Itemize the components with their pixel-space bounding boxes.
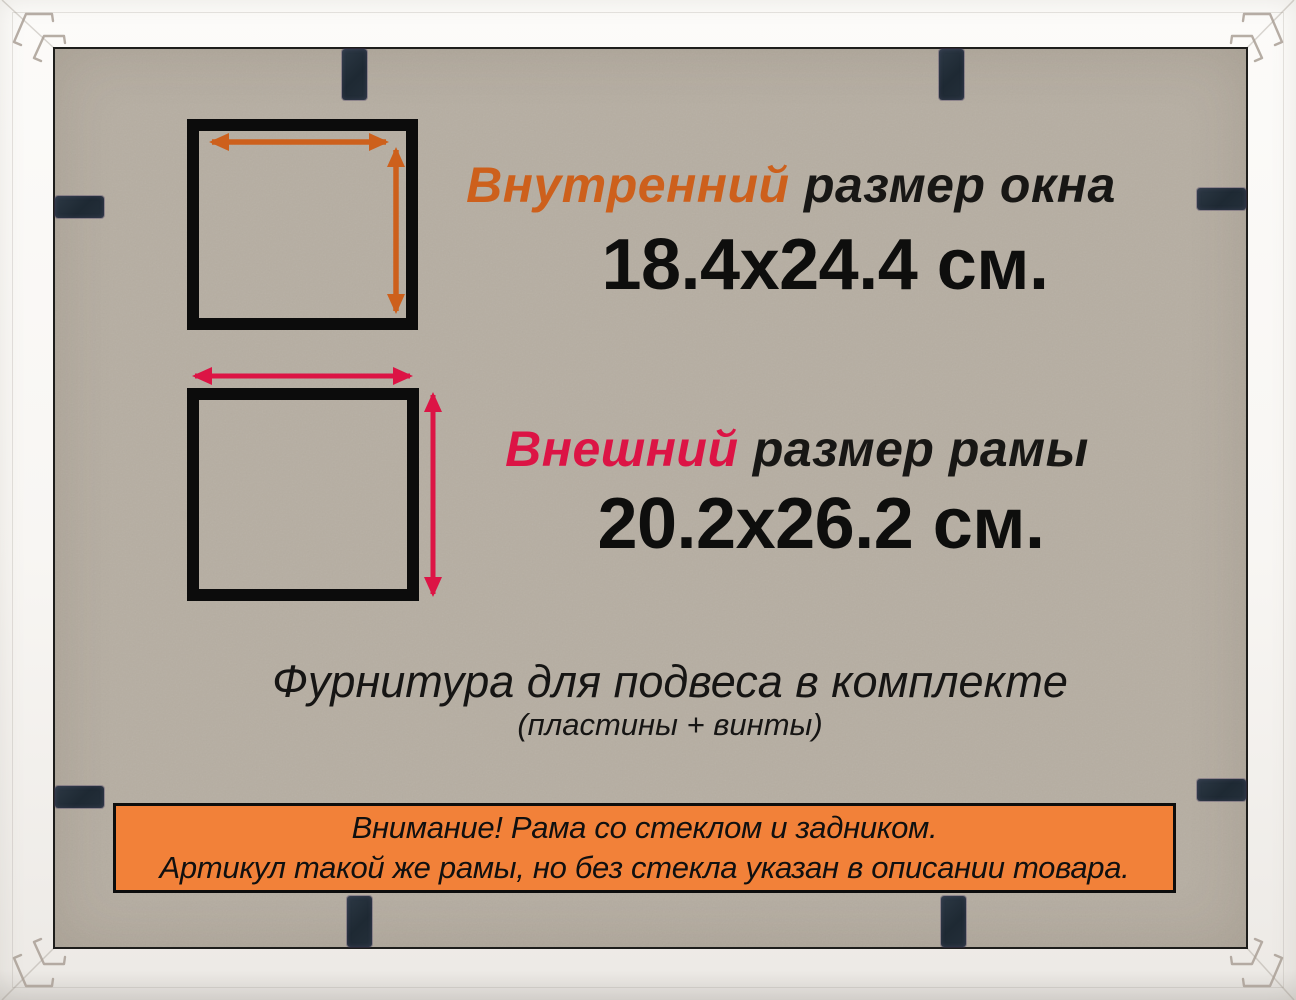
outer-size-highlight: Внешний <box>505 421 738 477</box>
retainer-clip-icon <box>941 896 966 947</box>
notice-banner: Внимание! Рама со стеклом и задником. Ар… <box>113 803 1176 893</box>
notice-line-2: Артикул такой же рамы, но без стекла ука… <box>160 851 1130 885</box>
retainer-clip-icon <box>1197 779 1246 801</box>
outer-size-value: 20.2х26.2 см. <box>597 488 1044 560</box>
hardware-contents-line: (пластины + винты) <box>517 709 822 740</box>
inner-size-title: Внутренний размер окна <box>466 160 1116 210</box>
retainer-clip-icon <box>55 786 104 808</box>
hardware-included-line: Фурнитура для подвеса в комплекте <box>272 659 1068 704</box>
outer-size-rest: размер рамы <box>738 421 1088 477</box>
retainer-clip-icon <box>342 49 367 100</box>
inner-size-highlight: Внутренний <box>466 157 789 213</box>
notice-line-1: Внимание! Рама со стеклом и задником. <box>352 811 938 845</box>
inner-size-rest: размер окна <box>790 157 1116 213</box>
retainer-clip-icon <box>55 196 104 218</box>
frame-back-product-photo: { "image_type": "product photo of pictur… <box>0 0 1296 1000</box>
outer-frame-diagram-square <box>187 388 419 601</box>
outer-size-title: Внешний размер рамы <box>505 424 1089 474</box>
retainer-clip-icon <box>1197 188 1246 210</box>
retainer-clip-icon <box>939 49 964 100</box>
retainer-clip-icon <box>347 896 372 947</box>
inner-window-diagram-square <box>187 119 418 330</box>
inner-size-value: 18.4х24.4 см. <box>601 229 1048 301</box>
